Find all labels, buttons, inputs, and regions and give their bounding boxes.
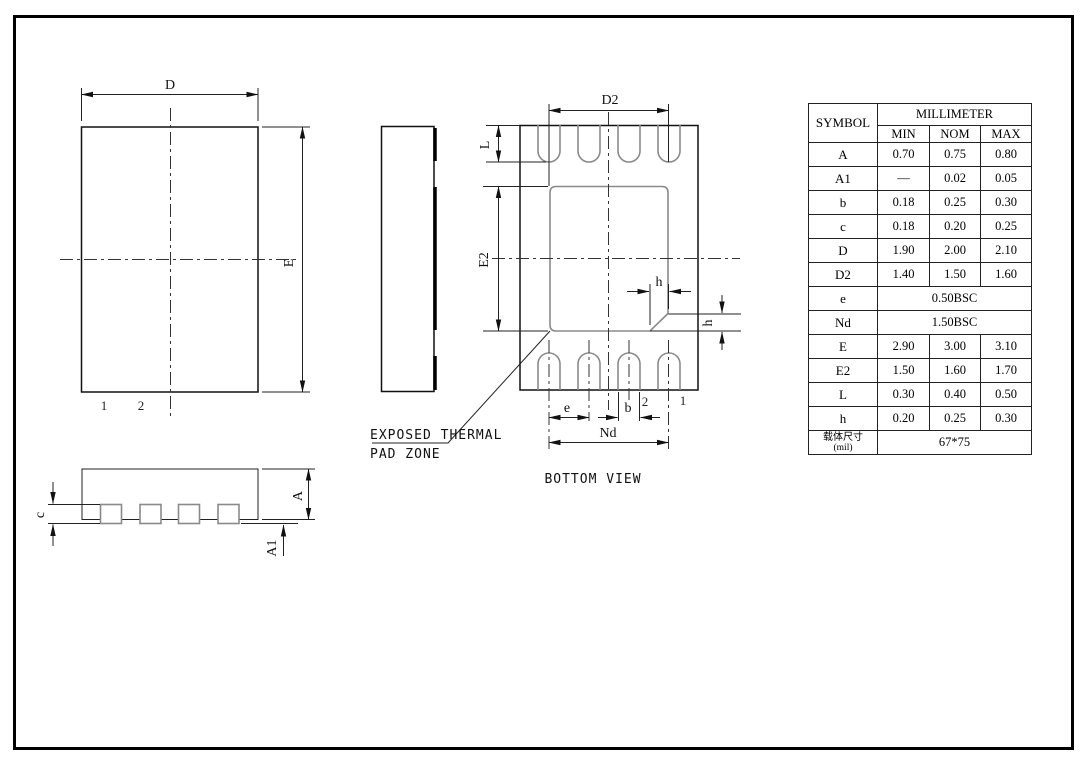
l-extension-lines bbox=[486, 126, 546, 163]
nom-cell: 0.75 bbox=[930, 143, 981, 167]
max-cell: 3.10 bbox=[981, 335, 1032, 359]
pin-1-label: 1 bbox=[680, 393, 687, 408]
dim-label-h-right: h bbox=[701, 320, 716, 327]
symbol-cell: 载体尺寸 (mil) bbox=[809, 431, 878, 455]
table-row: A1 — 0.02 0.05 bbox=[809, 167, 1032, 191]
carrier-size-unit: (mil) bbox=[809, 443, 877, 453]
c-extension-lines bbox=[48, 505, 100, 524]
lead-3 bbox=[179, 505, 200, 524]
symbol-cell: Nd bbox=[809, 311, 878, 335]
nom-cell: 0.40 bbox=[930, 383, 981, 407]
nom-cell: 1.60 bbox=[930, 359, 981, 383]
table-row: A 0.70 0.75 0.80 bbox=[809, 143, 1032, 167]
thermal-pad-annotation-line1: EXPOSED THERMAL bbox=[370, 428, 502, 443]
dim-label-l: L bbox=[478, 141, 493, 150]
min-cell: — bbox=[878, 167, 930, 191]
top-view: D E 1 2 bbox=[60, 78, 310, 420]
nom-cell: 1.50 bbox=[930, 263, 981, 287]
thermal-pad-annotation-line2: PAD ZONE bbox=[370, 447, 441, 462]
pin-2-label: 2 bbox=[642, 394, 649, 409]
min-cell: 1.90 bbox=[878, 239, 930, 263]
span-value-cell: 1.50BSC bbox=[878, 311, 1032, 335]
side-view-vertical bbox=[382, 127, 436, 392]
min-cell: 0.20 bbox=[878, 407, 930, 431]
symbol-cell: h bbox=[809, 407, 878, 431]
min-cell: 0.18 bbox=[878, 215, 930, 239]
side-view-horizontal: c A A1 bbox=[33, 469, 315, 557]
dim-label-h-top: h bbox=[656, 275, 663, 290]
max-cell: 0.30 bbox=[981, 407, 1032, 431]
table-row: Nd 1.50BSC bbox=[809, 311, 1032, 335]
symbol-cell: e bbox=[809, 287, 878, 311]
dim-label-e2: E2 bbox=[477, 252, 492, 268]
nom-cell: 2.00 bbox=[930, 239, 981, 263]
min-cell: 0.18 bbox=[878, 191, 930, 215]
max-cell: 0.25 bbox=[981, 215, 1032, 239]
h-right-extension-lines bbox=[650, 314, 741, 331]
nom-cell: 3.00 bbox=[930, 335, 981, 359]
min-cell: 0.70 bbox=[878, 143, 930, 167]
dim-label-a: A bbox=[291, 490, 306, 501]
table-row: L 0.30 0.40 0.50 bbox=[809, 383, 1032, 407]
span-value-cell: 0.50BSC bbox=[878, 287, 1032, 311]
dimension-table: SYMBOL MILLIMETER MIN NOM MAX A 0.70 0.7… bbox=[808, 103, 1032, 455]
symbol-cell: L bbox=[809, 383, 878, 407]
table-header-row: SYMBOL MILLIMETER bbox=[809, 104, 1032, 126]
symbol-cell: D2 bbox=[809, 263, 878, 287]
carrier-size-label: 载体尺寸 bbox=[809, 432, 877, 443]
min-cell: 1.50 bbox=[878, 359, 930, 383]
max-cell: 0.50 bbox=[981, 383, 1032, 407]
bottom-view-caption: BOTTOM VIEW bbox=[544, 472, 641, 487]
dim-label-c: c bbox=[33, 512, 48, 518]
table-row: E2 1.50 1.60 1.70 bbox=[809, 359, 1032, 383]
table-row: E 2.90 3.00 3.10 bbox=[809, 335, 1032, 359]
min-cell: 1.40 bbox=[878, 263, 930, 287]
top-pad-3 bbox=[618, 125, 640, 162]
symbol-cell: E bbox=[809, 335, 878, 359]
symbol-cell: D bbox=[809, 239, 878, 263]
max-cell: 1.70 bbox=[981, 359, 1032, 383]
dim-label-d2: D2 bbox=[601, 93, 618, 108]
dim-label-nd: Nd bbox=[599, 426, 616, 441]
table-row: D 1.90 2.00 2.10 bbox=[809, 239, 1032, 263]
top-pad-2 bbox=[578, 125, 600, 162]
dim-label-d: D bbox=[165, 78, 175, 93]
nom-cell: 0.25 bbox=[930, 407, 981, 431]
table-row: c 0.18 0.20 0.25 bbox=[809, 215, 1032, 239]
table-row: h 0.20 0.25 0.30 bbox=[809, 407, 1032, 431]
min-cell: 0.30 bbox=[878, 383, 930, 407]
header-nom: NOM bbox=[930, 126, 981, 143]
max-cell: 2.10 bbox=[981, 239, 1032, 263]
header-unit: MILLIMETER bbox=[878, 104, 1032, 126]
side-body-outline bbox=[382, 127, 435, 392]
symbol-cell: E2 bbox=[809, 359, 878, 383]
max-cell: 0.30 bbox=[981, 191, 1032, 215]
header-symbol: SYMBOL bbox=[809, 104, 878, 143]
table-row: 载体尺寸 (mil) 67*75 bbox=[809, 431, 1032, 455]
lead-4 bbox=[218, 505, 239, 524]
span-value-cell: 67*75 bbox=[878, 431, 1032, 455]
bottom-view: D2 L E2 h h e b Nd bbox=[370, 93, 741, 487]
symbol-cell: A1 bbox=[809, 167, 878, 191]
header-min: MIN bbox=[878, 126, 930, 143]
dim-label-b: b bbox=[625, 401, 632, 416]
max-cell: 0.05 bbox=[981, 167, 1032, 191]
lead-1 bbox=[101, 505, 122, 524]
thermal-pad-leader-line bbox=[372, 331, 550, 443]
nom-cell: 0.20 bbox=[930, 215, 981, 239]
nom-cell: 0.25 bbox=[930, 191, 981, 215]
header-max: MAX bbox=[981, 126, 1032, 143]
pin-1-label: 1 bbox=[101, 398, 108, 413]
max-cell: 0.80 bbox=[981, 143, 1032, 167]
table-row: b 0.18 0.25 0.30 bbox=[809, 191, 1032, 215]
symbol-cell: c bbox=[809, 215, 878, 239]
nom-cell: 0.02 bbox=[930, 167, 981, 191]
table-row: D2 1.40 1.50 1.60 bbox=[809, 263, 1032, 287]
dim-label-a1: A1 bbox=[265, 539, 280, 556]
dim-label-e: E bbox=[282, 259, 297, 268]
h-top-extension-lines bbox=[650, 284, 669, 325]
min-cell: 2.90 bbox=[878, 335, 930, 359]
pin-2-label: 2 bbox=[138, 398, 145, 413]
table-row: e 0.50BSC bbox=[809, 287, 1032, 311]
datasheet-page: D E 1 2 bbox=[0, 0, 1089, 771]
symbol-cell: b bbox=[809, 191, 878, 215]
lead-2 bbox=[140, 505, 161, 524]
symbol-cell: A bbox=[809, 143, 878, 167]
dim-label-e-pitch: e bbox=[564, 401, 570, 416]
max-cell: 1.60 bbox=[981, 263, 1032, 287]
